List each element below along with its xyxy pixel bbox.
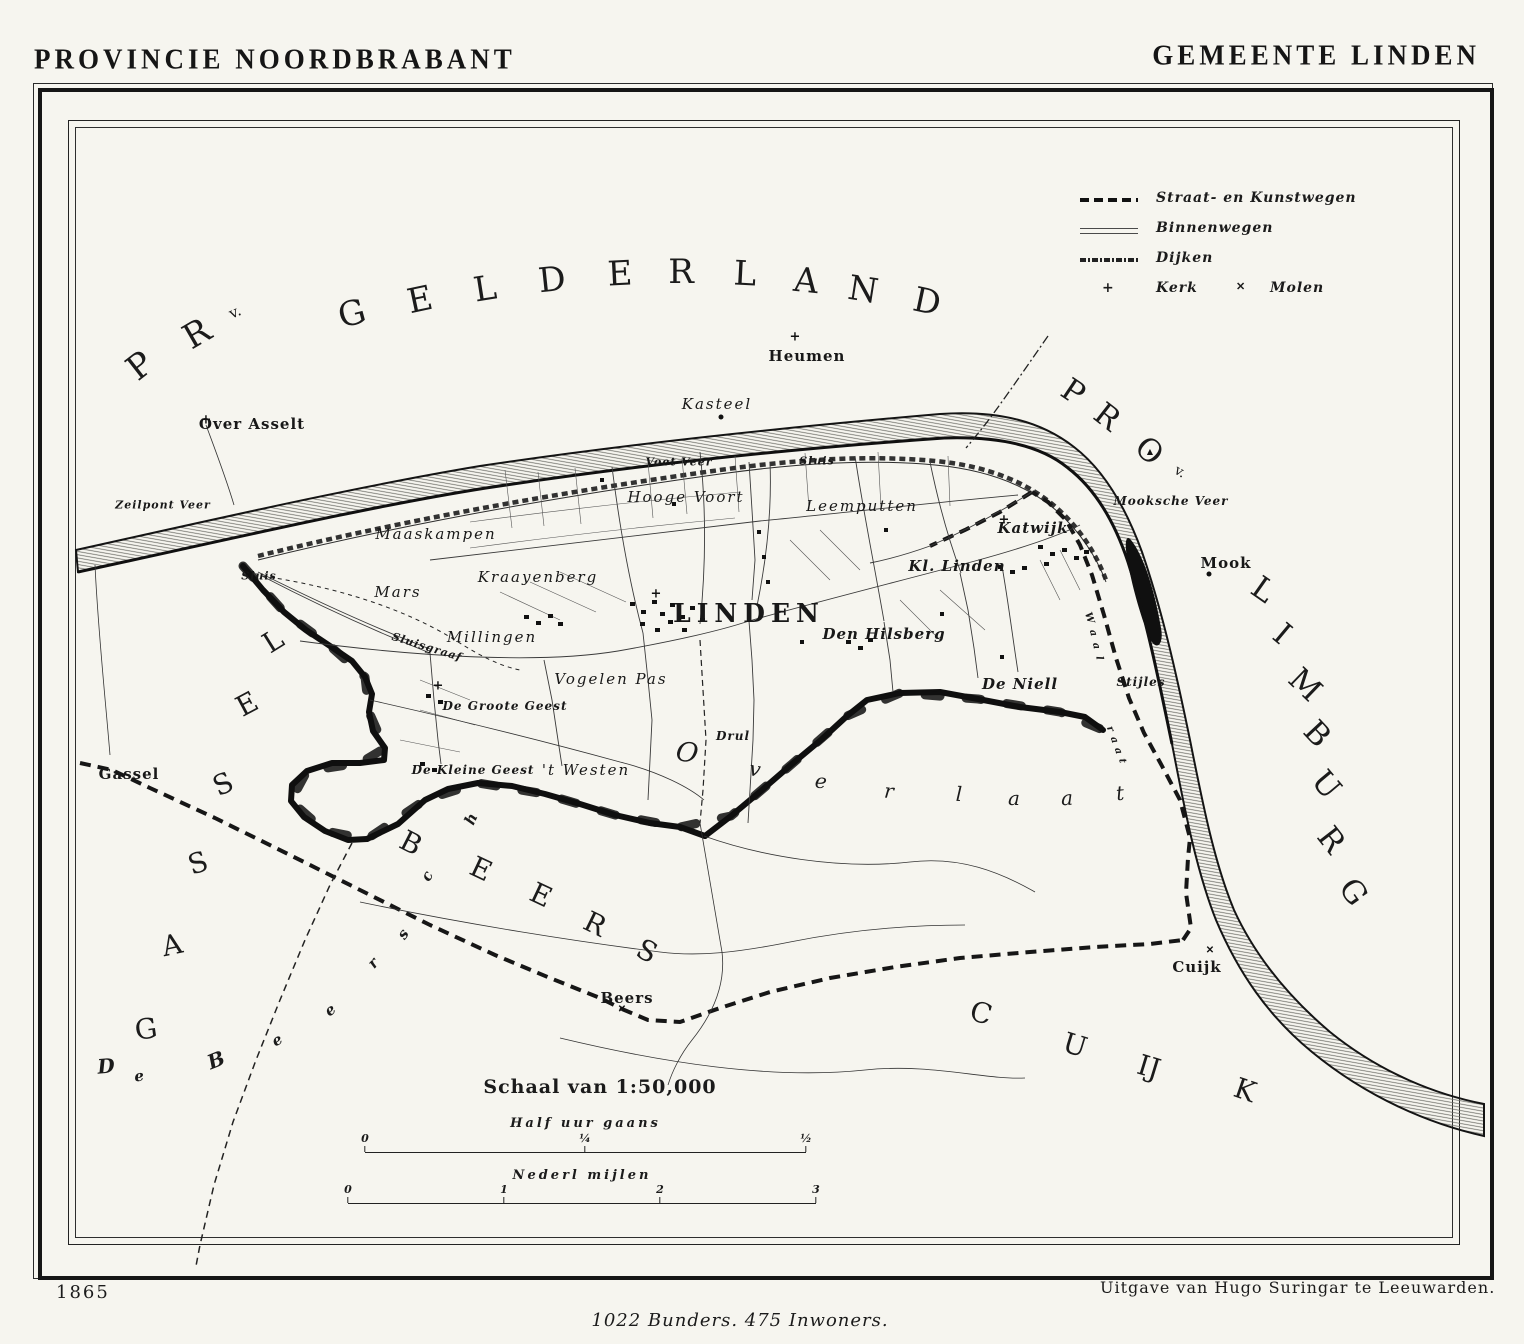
scale-title: Schaal van 1:50,000 (440, 1076, 760, 1098)
de-beersche-letter: D (96, 1053, 115, 1078)
legend-label-roads: Straat- en Kunstwegen (1156, 190, 1357, 206)
map-label-kasteel: Kasteel (682, 395, 752, 413)
province-gelderland-letter: A (792, 260, 821, 302)
scale-tick (347, 1197, 348, 1203)
triangle-icon: ▲ (1147, 448, 1153, 456)
province-gelderland-letter: N (845, 268, 881, 312)
church-cross-icon: + (433, 680, 444, 693)
map-label-mooksche-veer: Mooksche Veer (1113, 494, 1228, 508)
stats-label: 1022 Bunders. 475 Inwoners. (460, 1310, 1020, 1331)
legend-label-lanes: Binnenwegen (1156, 220, 1273, 236)
map-label-stijles: Stijles (1116, 675, 1165, 689)
church-cross-icon: + (790, 331, 801, 344)
map-label-den-hilsberg: Den Hilsberg (822, 625, 945, 643)
church-cross-icon: + (201, 414, 212, 427)
municipality-gassel-letter: G (133, 1011, 160, 1047)
map-label-millingen: Millingen (447, 628, 537, 646)
map-label-drul: Drul (716, 729, 750, 743)
dot-icon (719, 415, 724, 420)
scale-tick (364, 1146, 365, 1152)
scale-tick (805, 1146, 806, 1152)
scale-tick (659, 1197, 660, 1203)
overlaat-letter: a (1060, 786, 1073, 811)
map-label-zeilpont-veer: Zeilpont Veer (115, 499, 211, 512)
scale-tick-label: 0 (361, 1132, 369, 1145)
map-label-gassel: Gassel (99, 765, 160, 783)
legend: Straat- en Kunstwegen Binnenwegen Dijken… (1080, 186, 1410, 306)
map-label-beers: Beers (600, 989, 653, 1007)
dot-icon (1207, 572, 1212, 577)
map-label-heumen: Heumen (769, 347, 846, 365)
map-label-over-asselt: Over Asselt (199, 415, 305, 433)
map-label-de-groote-geest: De Groote Geest (443, 699, 568, 713)
legend-row-roads: Straat- en Kunstwegen (1080, 186, 1410, 216)
legend-label-kerk: Kerk (1156, 280, 1198, 296)
publisher-label: Uitgave van Hugo Suringar te Leeuwarden. (1100, 1278, 1495, 1297)
map-label-kl-linden: Kl. Linden (908, 557, 1005, 575)
province-gelderland-letter: E (607, 253, 634, 294)
legend-row-lanes: Binnenwegen (1080, 216, 1410, 246)
scale-tick-label: 1 (500, 1183, 508, 1196)
map-label-vogelen-pas: Vogelen Pas (554, 670, 667, 688)
road-line-icon (1080, 198, 1138, 202)
scale-bar-0 (365, 1152, 806, 1153)
map-label-sluis: Sluis (799, 455, 835, 468)
map-label-de-niell: De Niell (982, 675, 1058, 693)
scale-tick-label: ½ (800, 1132, 811, 1145)
molen-windmill-icon: ✕ (1236, 280, 1245, 293)
lane-line-icon (1080, 228, 1138, 234)
map-label-de-kleine-geest: De Kleine Geest (412, 763, 535, 777)
map-label-linden: LINDEN (673, 598, 825, 628)
windmill-icon: ✕ (1206, 946, 1214, 956)
map-label-voet-veer: Voet Veer (645, 456, 712, 469)
map-label-maaskampen: Maaskampen (375, 525, 496, 543)
map-label-leemputten: Leemputten (806, 497, 918, 515)
scale-bar-label-0: Half uur gaans (510, 1116, 661, 1131)
legend-row-symbols: + Kerk ✕ Molen (1080, 276, 1410, 306)
overlaat-letter: a (1008, 786, 1020, 810)
overlaat-letter: l (955, 782, 962, 806)
legend-label-dikes: Dijken (1156, 250, 1213, 266)
scale-tick-label: ¼ (579, 1132, 590, 1145)
scale-bar-1 (348, 1203, 816, 1204)
dike-line-icon (1080, 258, 1138, 262)
windmill-icon: ✕ (618, 1005, 626, 1015)
map-label-mars: Mars (374, 583, 421, 601)
map-label-cuijk: Cuijk (1172, 958, 1221, 976)
scale-bar-label-1: Nederl mijlen (513, 1168, 652, 1183)
map-label-kraayenberg: Kraayenberg (478, 568, 599, 586)
map-label--t-westen: 't Westen (542, 761, 630, 779)
legend-row-dikes: Dijken (1080, 246, 1410, 276)
map-label-hooge-voort: Hooge Voort (627, 488, 744, 506)
province-gelderland-letter: R (668, 252, 694, 292)
scale-tick (584, 1146, 585, 1152)
church-cross-icon: + (999, 514, 1010, 527)
year-label: 1865 (56, 1282, 110, 1303)
map-label-mook: Mook (1200, 554, 1251, 572)
legend-label-molen: Molen (1270, 280, 1324, 296)
scale-tick-label: 3 (812, 1183, 820, 1196)
church-cross-icon: + (651, 588, 662, 601)
province-gelderland-letter: D (536, 259, 567, 302)
map-label-sluis: Sluis (241, 570, 277, 583)
scale-tick (503, 1197, 504, 1203)
overlaat-letter: r (883, 779, 895, 804)
map-sheet: PROVINCIE NOORDBRABANT GEMEENTE LINDEN (0, 0, 1524, 1344)
scale-tick (815, 1197, 816, 1203)
scale-tick-label: 0 (344, 1183, 352, 1196)
kerk-cross-icon: + (1102, 280, 1114, 296)
province-gelderland-letter: L (733, 253, 758, 294)
scale-tick-label: 2 (656, 1183, 664, 1196)
